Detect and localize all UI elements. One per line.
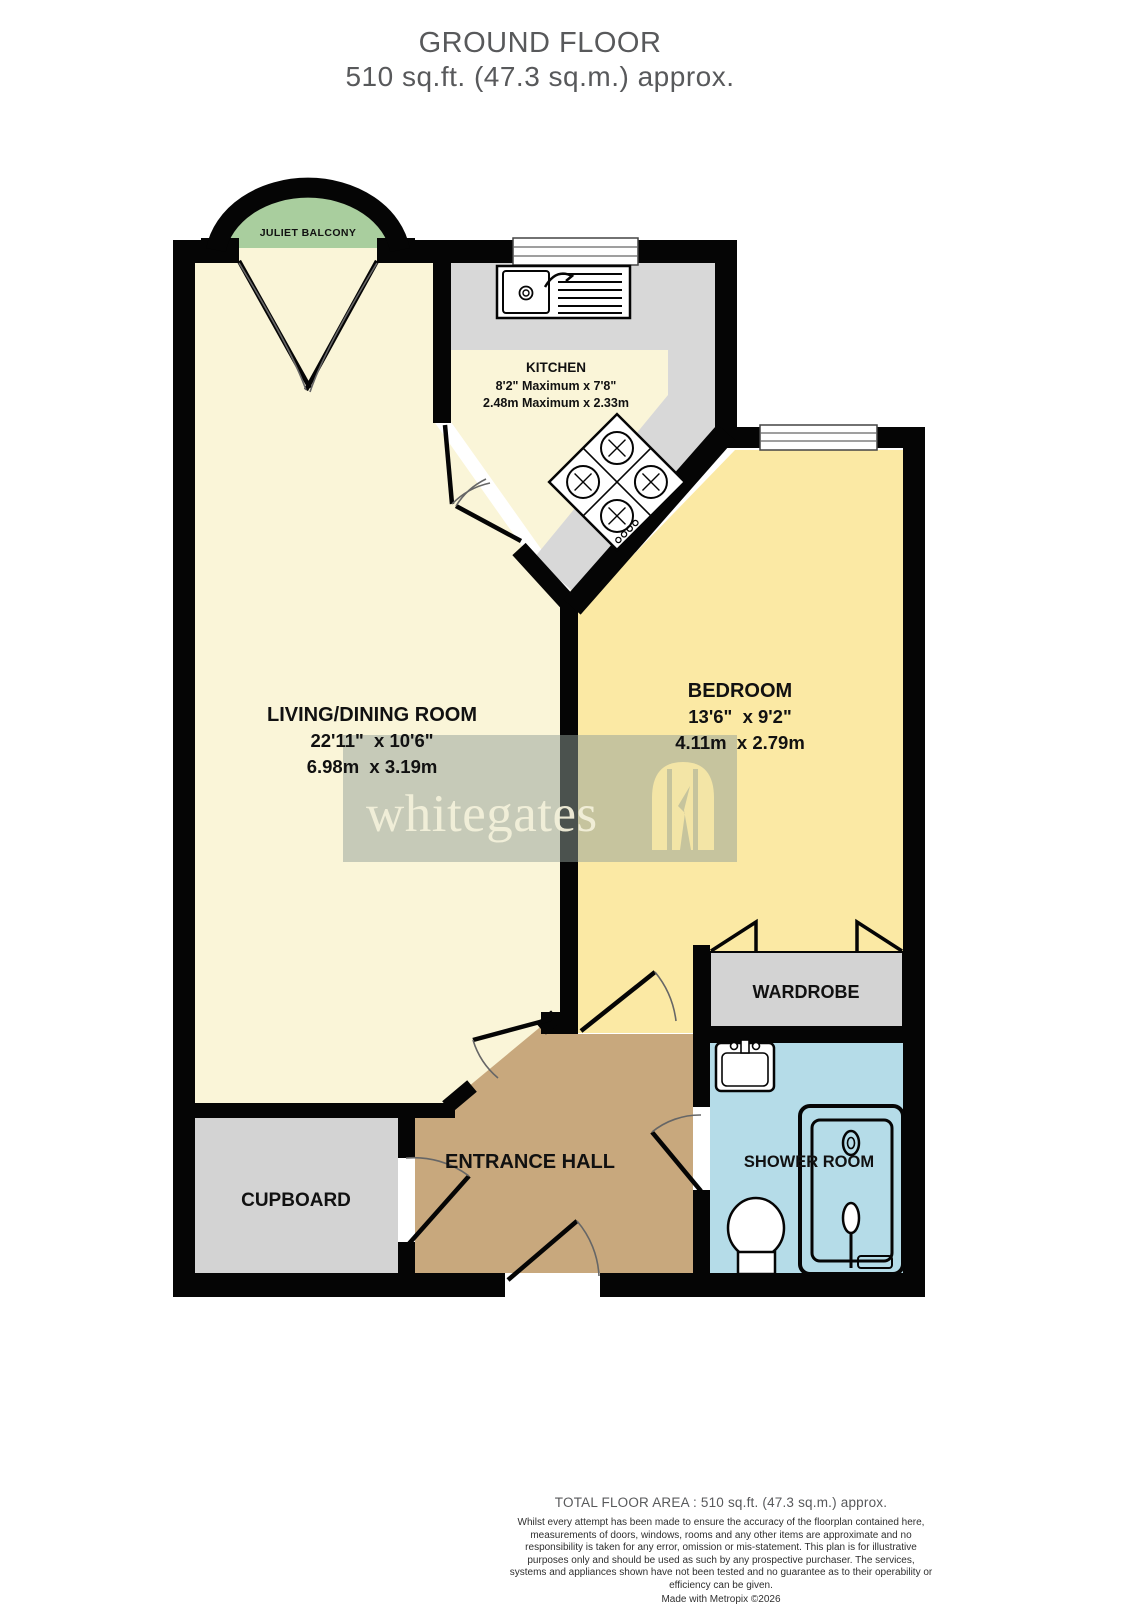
floorplan-page: { "title": { "line1": "GROUND FLOOR", "l… xyxy=(0,0,1142,1600)
footer: TOTAL FLOOR AREA : 510 sq.ft. (47.3 sq.m… xyxy=(421,1495,1021,1606)
kitchen-label: KITCHEN xyxy=(526,360,586,375)
living-dining-dims-metric: 6.98m x 3.19m xyxy=(307,756,438,777)
balcony-threshold xyxy=(239,248,377,264)
bedroom-label: BEDROOM xyxy=(688,680,792,702)
watermark-brand-text: whitegates xyxy=(366,785,598,843)
living-dining-dims-imperial: 22'11" x 10'6" xyxy=(310,730,433,751)
watermark: whitegates xyxy=(343,735,737,862)
kitchen-sink xyxy=(497,266,630,318)
whitegates-gate-icon xyxy=(652,762,714,850)
wash-basin xyxy=(716,1040,774,1091)
disclaimer-text: Whilst every attempt has been made to en… xyxy=(509,1517,933,1593)
bedroom-window xyxy=(760,425,877,450)
wardrobe-label: WARDROBE xyxy=(753,982,860,1002)
kitchen-window xyxy=(513,238,638,265)
juliet-balcony-label: JULIET BALCONY xyxy=(260,227,357,239)
bedroom-dims-imperial: 13'6" x 9'2" xyxy=(688,706,792,727)
shower-room-label: SHOWER ROOM xyxy=(744,1153,874,1171)
total-floor-area: TOTAL FLOOR AREA : 510 sq.ft. (47.3 sq.m… xyxy=(421,1495,1021,1510)
living-dining-label: LIVING/DINING ROOM xyxy=(267,704,477,726)
bedroom-dims-metric: 4.11m x 2.79m xyxy=(675,732,805,753)
kitchen-dims-imperial: 8'2" Maximum x 7'8" xyxy=(496,379,617,393)
cupboard-label: CUPBOARD xyxy=(241,1190,351,1211)
floorplan-drawing: whitegates JULIET BALCONY KITCHEN 8'2" M… xyxy=(0,0,1142,1600)
entrance-hall-label: ENTRANCE HALL xyxy=(445,1151,615,1173)
metropix-credit: Made with Metropix ©2026 xyxy=(421,1593,1021,1606)
kitchen-dims-metric: 2.48m Maximum x 2.33m xyxy=(483,396,629,410)
